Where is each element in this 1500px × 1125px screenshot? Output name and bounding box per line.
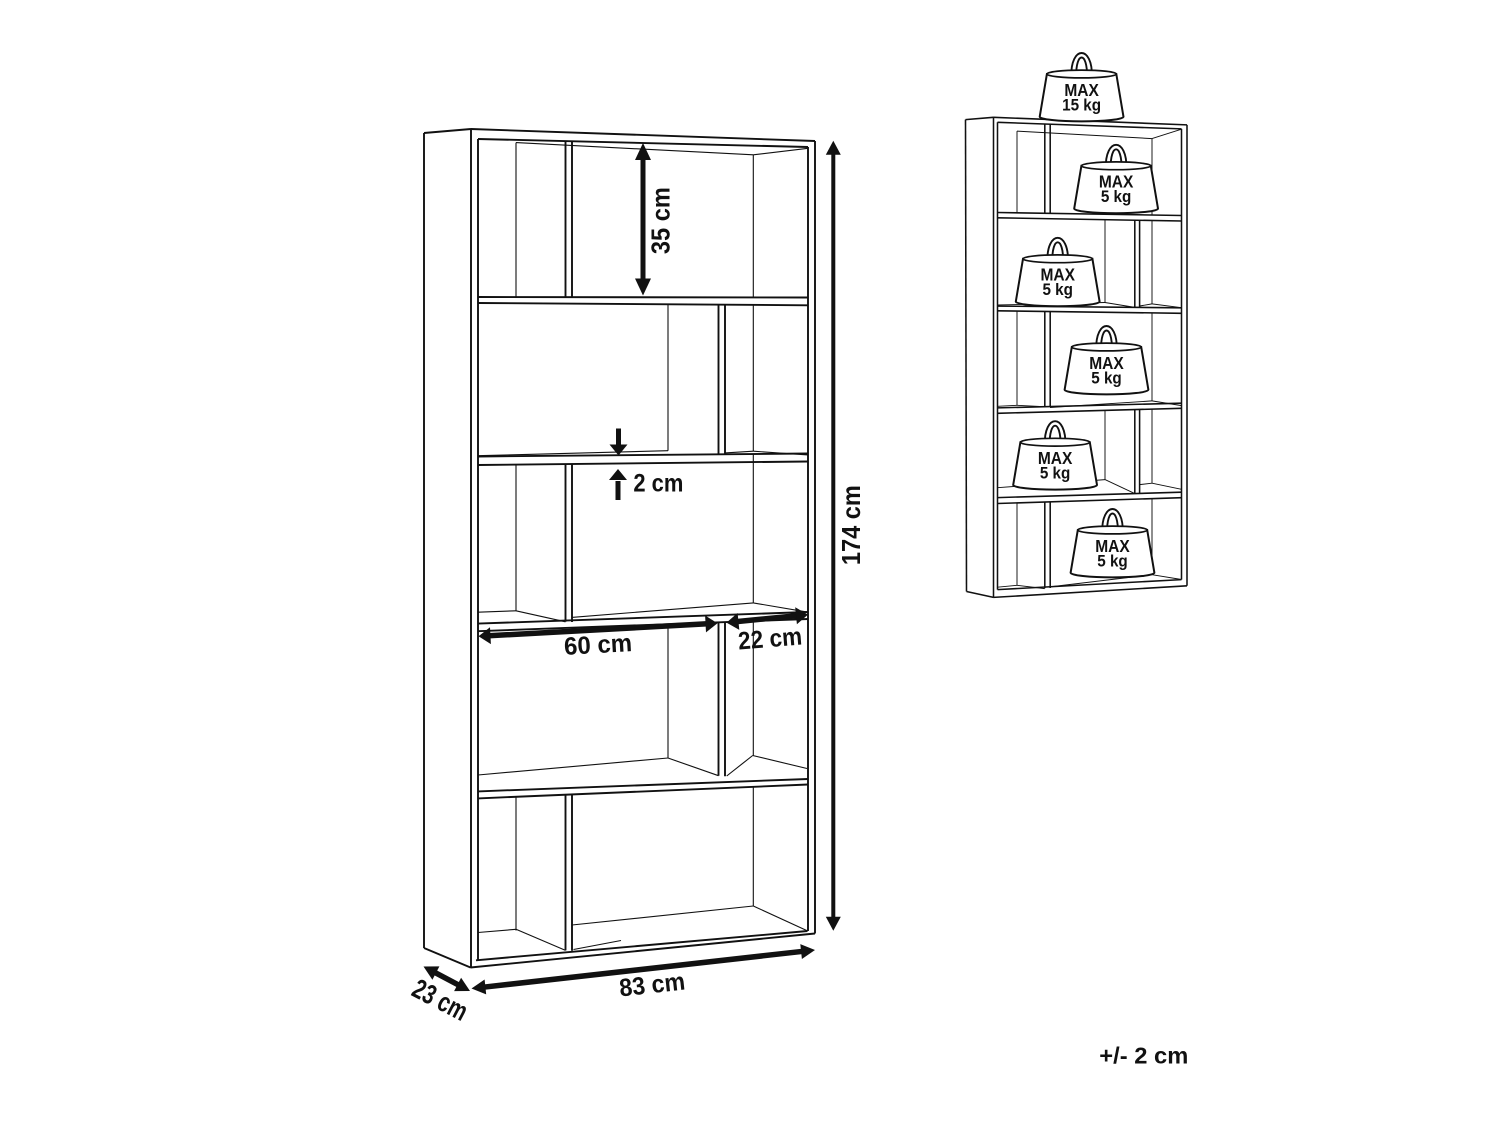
svg-text:5 kg: 5 kg — [1040, 464, 1071, 483]
svg-text:5 kg: 5 kg — [1101, 187, 1132, 206]
svg-text:5 kg: 5 kg — [1042, 280, 1073, 299]
svg-text:5 kg: 5 kg — [1097, 551, 1128, 570]
svg-text:23 cm: 23 cm — [407, 973, 473, 1027]
svg-text:+/- 2 cm: +/- 2 cm — [1099, 1043, 1188, 1069]
svg-text:5 kg: 5 kg — [1091, 368, 1122, 387]
svg-text:22 cm: 22 cm — [737, 623, 803, 656]
svg-text:174 cm: 174 cm — [836, 485, 866, 565]
svg-text:60 cm: 60 cm — [563, 629, 632, 661]
svg-text:83 cm: 83 cm — [618, 968, 687, 1003]
svg-text:35 cm: 35 cm — [646, 187, 676, 254]
svg-text:15 kg: 15 kg — [1062, 95, 1101, 114]
svg-text:2 cm: 2 cm — [633, 470, 683, 498]
